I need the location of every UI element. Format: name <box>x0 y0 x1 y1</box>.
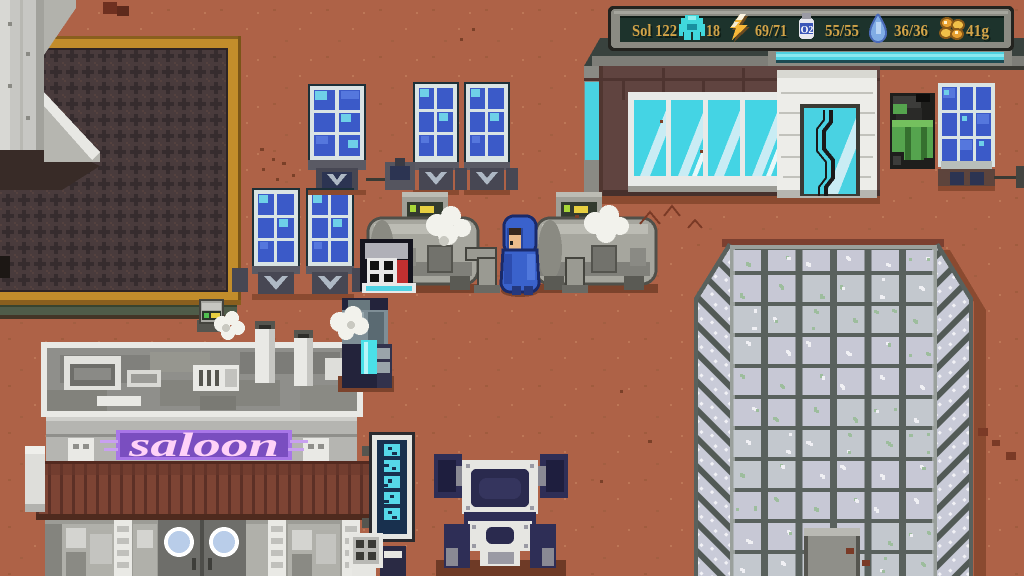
svg-text:69/71: 69/71 <box>755 21 787 40</box>
svg-text:18: 18 <box>706 21 720 40</box>
svg-text:55/55: 55/55 <box>825 21 859 40</box>
svg-text:Sol 122: Sol 122 <box>632 21 677 40</box>
svg-text:O2: O2 <box>801 25 814 36</box>
svg-text:36/36: 36/36 <box>894 21 928 40</box>
svg-text:saloon: saloon <box>127 427 279 464</box>
svg-text:41g: 41g <box>966 21 989 40</box>
